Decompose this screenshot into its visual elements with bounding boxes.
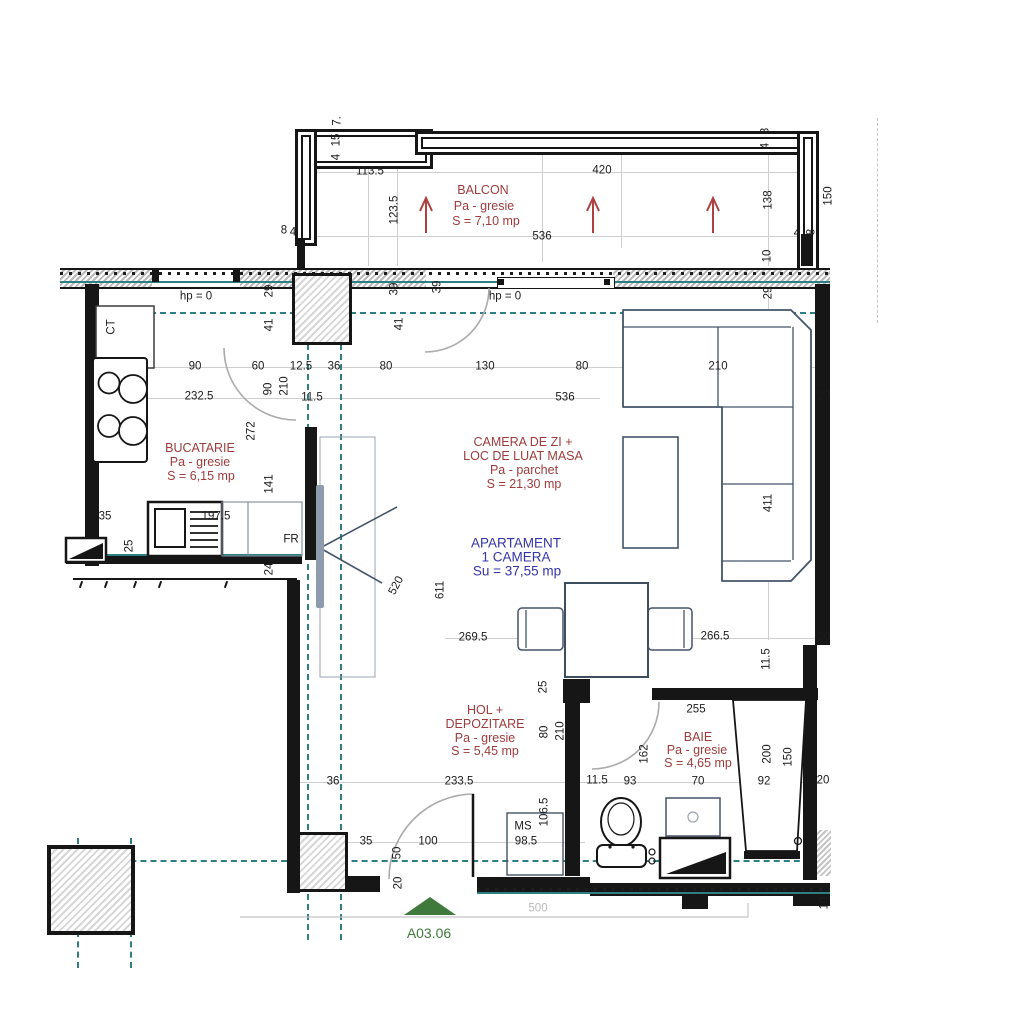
dimension-label: 106.5 [539,798,551,827]
dimension-label: 80 [539,726,551,739]
dimension-label: CT [106,319,118,334]
dimension-label: 98.5 [515,836,537,848]
apartment-label: Su = 37,55 mp [473,564,561,578]
dimension-label: 141 [264,474,276,493]
dimension-label: 611 [435,581,447,599]
dimension-label: 162 [639,744,651,763]
dimension-label: 150 [783,747,795,766]
dimension-label: 15 [331,134,343,147]
dimension-label: 36 [327,776,340,788]
dimension-label: 20 [818,632,831,644]
dimension-label: 92 [758,776,771,788]
dimension-label: MS [514,821,531,833]
dimension-label: 60 [252,361,265,373]
room-label: BALCON [457,184,508,197]
room-label: HOL + [467,704,503,717]
room-label: Pa - gresie [667,744,727,757]
dimension-label: 11.5 [301,392,323,404]
dimension-label: 29 [763,287,775,300]
dimension-label: 12.5 [290,361,312,373]
room-label: Pa - gresie [455,732,515,745]
dimension-label: 200 [762,744,774,763]
dimension-label: 29 [264,285,276,298]
dimension-label: 269.5 [459,632,488,644]
dimension-label: 255 [686,704,705,716]
dimension-label: 4 [794,228,800,240]
room-label: DEPOZITARE [446,718,525,731]
dimension-label: 411 [763,494,775,512]
dimension-label: 4 [331,154,343,160]
dimension-label: 93 [624,776,637,788]
annotation-layer: BALCONPa - gresieS = 7,10 mpBUCATARIEPa … [0,0,1026,1023]
dimension-label: 10 [819,897,831,910]
dimension-label: 210 [555,721,567,740]
room-label: S = 7,10 mp [452,215,520,228]
room-label: Pa - parchet [490,464,558,477]
dimension-label: 80 [380,361,393,373]
dimension-label: hp = 0 [180,291,212,303]
room-label: S = 4,65 mp [664,757,732,770]
dimension-label: 272 [246,421,258,440]
dimension-label: 130 [475,361,494,373]
dimension-label: 536 [555,392,574,404]
room-label: LOC DE LUAT MASA [463,450,583,463]
room-label: Pa - gresie [454,200,514,213]
dimension-label: 20 [393,877,405,890]
dimension-label: 8 [806,229,818,235]
dimension-label: 150 [823,186,835,205]
room-label: S = 5,45 mp [451,745,519,758]
dimension-label: 197.5 [202,511,231,523]
dimension-label: 39 [432,281,444,294]
dimension-label: 113.5 [356,166,384,178]
dimension-label: 25 [538,681,550,694]
dimension-label: 4 [760,143,772,149]
dimension-label: 20 [818,391,831,403]
dimension-label: 210 [708,361,727,373]
dimension-label: 70 [692,776,705,788]
dimension-label: 10 [762,250,774,263]
dimension-label: 7. [332,116,344,126]
dimension-label: 90 [189,361,202,373]
dimension-label: 266.5 [701,631,730,643]
faint-dimension-label: 500 [528,903,547,915]
dimension-label: 35 [360,836,373,848]
dimension-label: 123.5 [389,196,401,225]
dimension-label: 41 [394,318,406,331]
dimension-label: 36 [328,361,341,373]
room-label: CAMERA DE ZI + [474,436,573,449]
dimension-label: 420 [592,165,611,177]
dimension-label: 11.5 [761,648,773,670]
dimension-label: 233.5 [445,776,474,788]
dimension-label: 35 [99,511,112,523]
dimension-label: 520 [387,575,406,597]
dimension-label: 80 [576,361,589,373]
dimension-label: 232.5 [185,391,214,403]
dimension-label: 138 [763,190,775,209]
dimension-label: 11.5 [586,775,608,787]
dimension-label: 536 [532,231,551,243]
dimension-label: 4 [290,227,296,239]
dimension-label: 210 [279,376,291,395]
floor-plan: BALCONPa - gresieS = 7,10 mpBUCATARIEPa … [0,0,1026,1023]
room-label: BUCATARIE [165,442,235,455]
dimension-label: 25 [124,540,136,553]
dimension-label: 8 [281,225,287,237]
room-label: Pa - gresie [170,456,230,469]
apartment-label: APARTAMENT [471,536,561,550]
dimension-label: 24 [264,563,276,576]
dimension-label: 100 [418,836,437,848]
dimension-label: FR [283,534,298,546]
dimension-label: hp = 0 [489,291,521,303]
dimension-label: 39 [389,283,401,296]
room-label: BAIE [684,731,713,744]
dimension-label: 8 [760,128,772,134]
room-label: S = 6,15 mp [167,470,235,483]
apartment-label: 1 CAMERA [481,550,550,564]
dimension-label: 90 [263,383,275,396]
drawing-code-label: A03.06 [407,926,451,940]
dimension-label: 50 [392,847,404,860]
dimension-label: 41 [264,319,276,332]
room-label: S = 21,30 mp [487,478,562,491]
dimension-label: 20 [817,775,830,787]
